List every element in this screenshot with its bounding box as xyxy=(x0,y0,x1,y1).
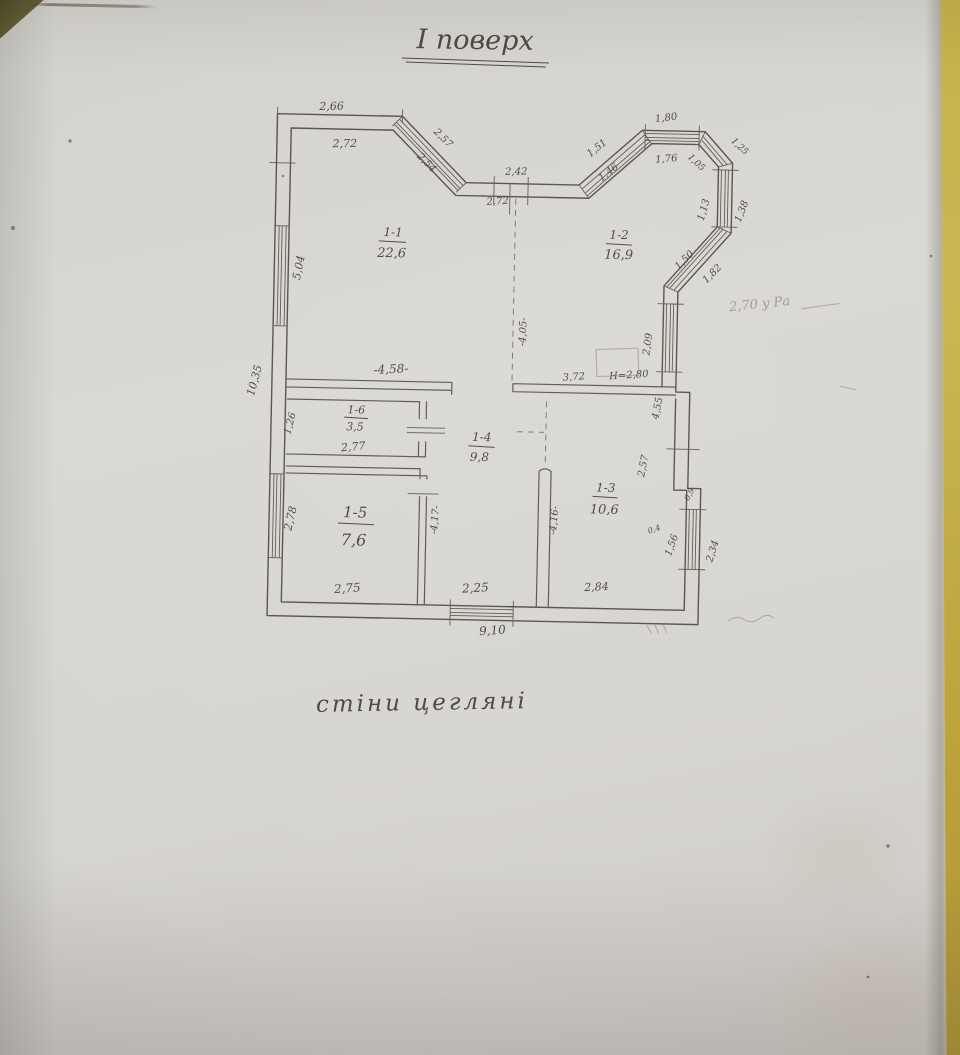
tick-right-wall xyxy=(667,449,700,450)
dim: 2,66 xyxy=(318,100,344,113)
tick-left-wall xyxy=(270,163,296,164)
door-room-1-6[interactable] xyxy=(407,427,445,433)
dim: 1,76 xyxy=(655,153,679,166)
dim: -4,17- xyxy=(429,504,443,535)
interior-walls xyxy=(260,107,706,611)
dash-hall-divider xyxy=(512,199,516,384)
pencil-mark-right xyxy=(802,303,840,310)
dim: 1,25 xyxy=(729,136,751,157)
photo-artifacts xyxy=(11,139,932,978)
room-1-3-id: 1-3 xyxy=(596,480,616,494)
title-block: І поверх xyxy=(402,24,550,67)
dim: 1,05 xyxy=(685,152,707,173)
window-top-room2 xyxy=(645,124,700,150)
dim: 2,77 xyxy=(339,439,365,454)
dashed-lines xyxy=(510,199,551,468)
room-1-4-underline xyxy=(469,446,495,448)
dim: 2,78 xyxy=(281,505,299,533)
wall-room2-bottom xyxy=(513,384,676,395)
room-1-1-underline xyxy=(379,241,406,243)
room-1-6-underline xyxy=(344,417,368,419)
door-room-1-5[interactable] xyxy=(408,494,439,495)
window-diag-topleft xyxy=(391,116,468,193)
pencil-note: 2,70 у Ра xyxy=(727,294,790,315)
room-1-2-area: 16,9 xyxy=(604,248,633,264)
room-1-4-id: 1-4 xyxy=(472,430,492,444)
dim: 2,09 xyxy=(641,332,655,357)
dim: 2,75 xyxy=(332,580,361,596)
dim: 2,57 xyxy=(636,453,651,479)
dust-speck xyxy=(930,255,933,258)
note-block: стіни цегляні xyxy=(316,688,528,718)
window-right-lower xyxy=(678,509,706,570)
room-1-1-area: 22,6 xyxy=(376,246,406,262)
room-1-2-id: 1-2 xyxy=(609,228,629,242)
dim: 1,38 xyxy=(733,199,751,224)
dim: 1,80 xyxy=(654,112,678,126)
pencil-scribble-bottomright xyxy=(728,614,774,622)
dim: 4,55 xyxy=(650,396,665,421)
dim: 1,13 xyxy=(696,198,713,222)
room-1-2-underline xyxy=(606,244,632,246)
title-underline xyxy=(402,58,549,67)
dust-speck xyxy=(867,976,870,979)
room-1-3-area: 10,6 xyxy=(590,502,619,518)
dim: 3,72 xyxy=(562,371,585,383)
dim: 9,10 xyxy=(479,622,507,638)
dim: 2,72 xyxy=(331,137,357,150)
page-title: І поверх xyxy=(415,24,534,57)
dim: -4,58- xyxy=(373,361,408,377)
pencil-dash-rightedge xyxy=(840,386,856,390)
wall-room1-bottom xyxy=(286,379,452,394)
room-1-5-underline xyxy=(338,523,374,525)
window-left-lower xyxy=(268,474,284,558)
room-1-3-underline xyxy=(593,496,618,498)
room-1-5-area: 7,6 xyxy=(341,530,367,550)
dim: -4,05- xyxy=(517,316,530,346)
window-diag-right xyxy=(664,226,731,293)
dim: 2,34 xyxy=(704,539,721,564)
dim: 2,72 xyxy=(485,196,509,208)
dim: 2,57 xyxy=(430,126,455,151)
dim: 2,54 xyxy=(414,151,438,175)
pencil-scribble-corner xyxy=(647,624,667,634)
dash-corridor xyxy=(516,401,546,468)
partition-room-1-3 xyxy=(536,469,551,608)
dim: -4,16- xyxy=(548,505,562,536)
dim: 2,42 xyxy=(504,167,527,178)
room-1-6-id: 1-6 xyxy=(347,403,365,416)
dim: 1,51 xyxy=(585,137,609,160)
dust-speck xyxy=(68,139,71,142)
room-1-5-id: 1-5 xyxy=(343,503,368,522)
room-1-4-area: 9,8 xyxy=(470,450,490,464)
window-right-209 xyxy=(656,304,683,373)
dust-speck xyxy=(886,844,890,848)
floor-plan: 2,66 2,72 2,57 2,54 2,42 2,72 1,51 1,46 … xyxy=(239,98,844,646)
dim: 1,56 xyxy=(663,532,681,557)
dim: 1,82 xyxy=(701,262,725,285)
dim: 10,35 xyxy=(244,364,265,398)
room-1-6-area: 3,5 xyxy=(346,420,364,433)
room-1-1-id: 1-1 xyxy=(383,225,403,239)
dust-speck xyxy=(11,226,15,230)
floor-plan-drawing: І поверх xyxy=(0,0,960,1055)
dim: 2,84 xyxy=(583,580,609,594)
dust-speck xyxy=(282,175,285,178)
dim: 0,4 xyxy=(647,523,662,536)
dim: 2,25 xyxy=(461,580,489,595)
dim: 5,04 xyxy=(290,254,308,281)
walls-note: стіни цегляні xyxy=(316,688,528,718)
pencil-marks xyxy=(590,298,840,637)
outer-wall xyxy=(267,114,733,625)
